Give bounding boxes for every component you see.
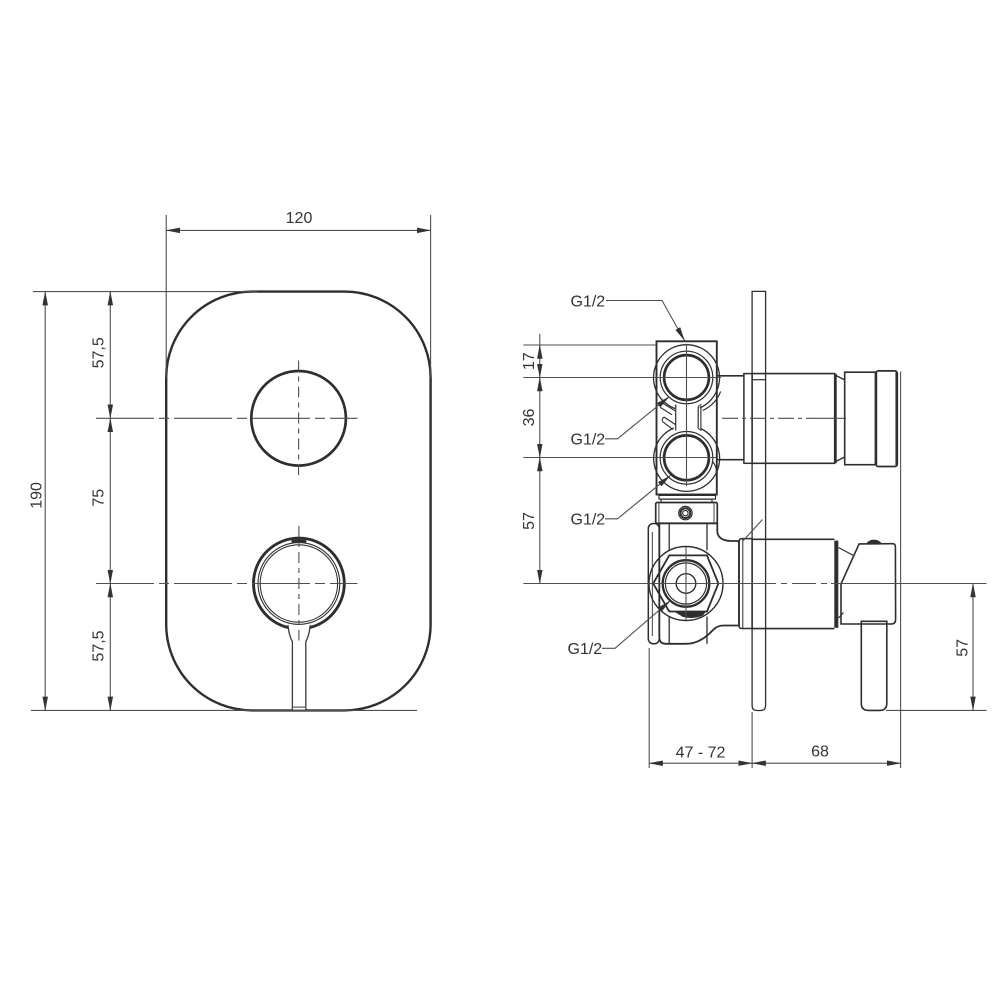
- svg-text:75: 75: [91, 489, 108, 507]
- svg-text:120: 120: [286, 210, 313, 227]
- svg-text:190: 190: [29, 482, 46, 509]
- svg-text:57,5: 57,5: [91, 630, 108, 661]
- svg-text:17: 17: [521, 352, 538, 370]
- svg-text:G1/2: G1/2: [571, 512, 606, 529]
- svg-text:68: 68: [811, 744, 829, 761]
- svg-text:36: 36: [521, 409, 538, 427]
- svg-text:57,5: 57,5: [91, 337, 108, 368]
- svg-text:G1/2: G1/2: [571, 432, 606, 449]
- svg-text:G1/2: G1/2: [568, 641, 603, 658]
- svg-text:G1/2: G1/2: [571, 294, 606, 311]
- svg-text:57: 57: [954, 639, 971, 657]
- svg-text:57: 57: [521, 512, 538, 530]
- svg-text:47 - 72: 47 - 72: [676, 745, 726, 762]
